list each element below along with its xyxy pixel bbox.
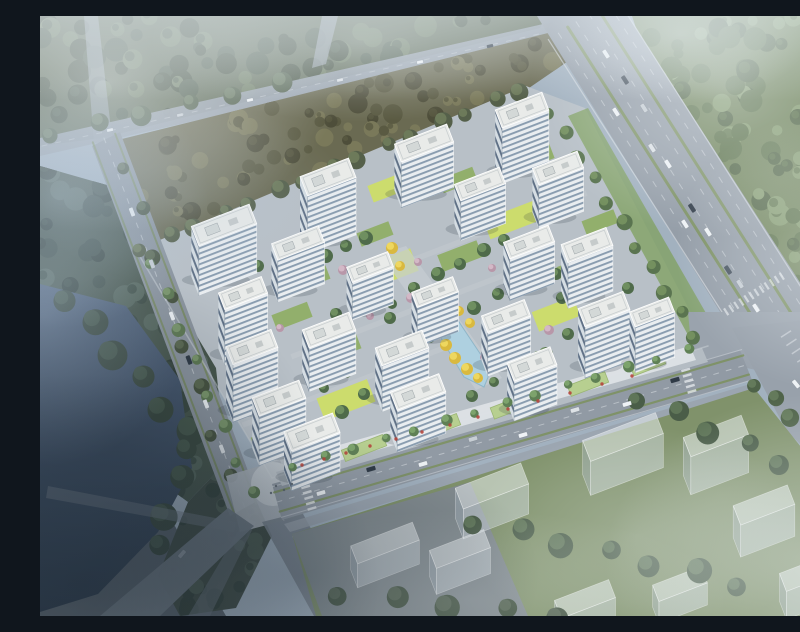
aerial-rendering xyxy=(40,16,800,616)
aerial-render-figure xyxy=(40,16,800,616)
sky-light-band xyxy=(40,16,800,100)
